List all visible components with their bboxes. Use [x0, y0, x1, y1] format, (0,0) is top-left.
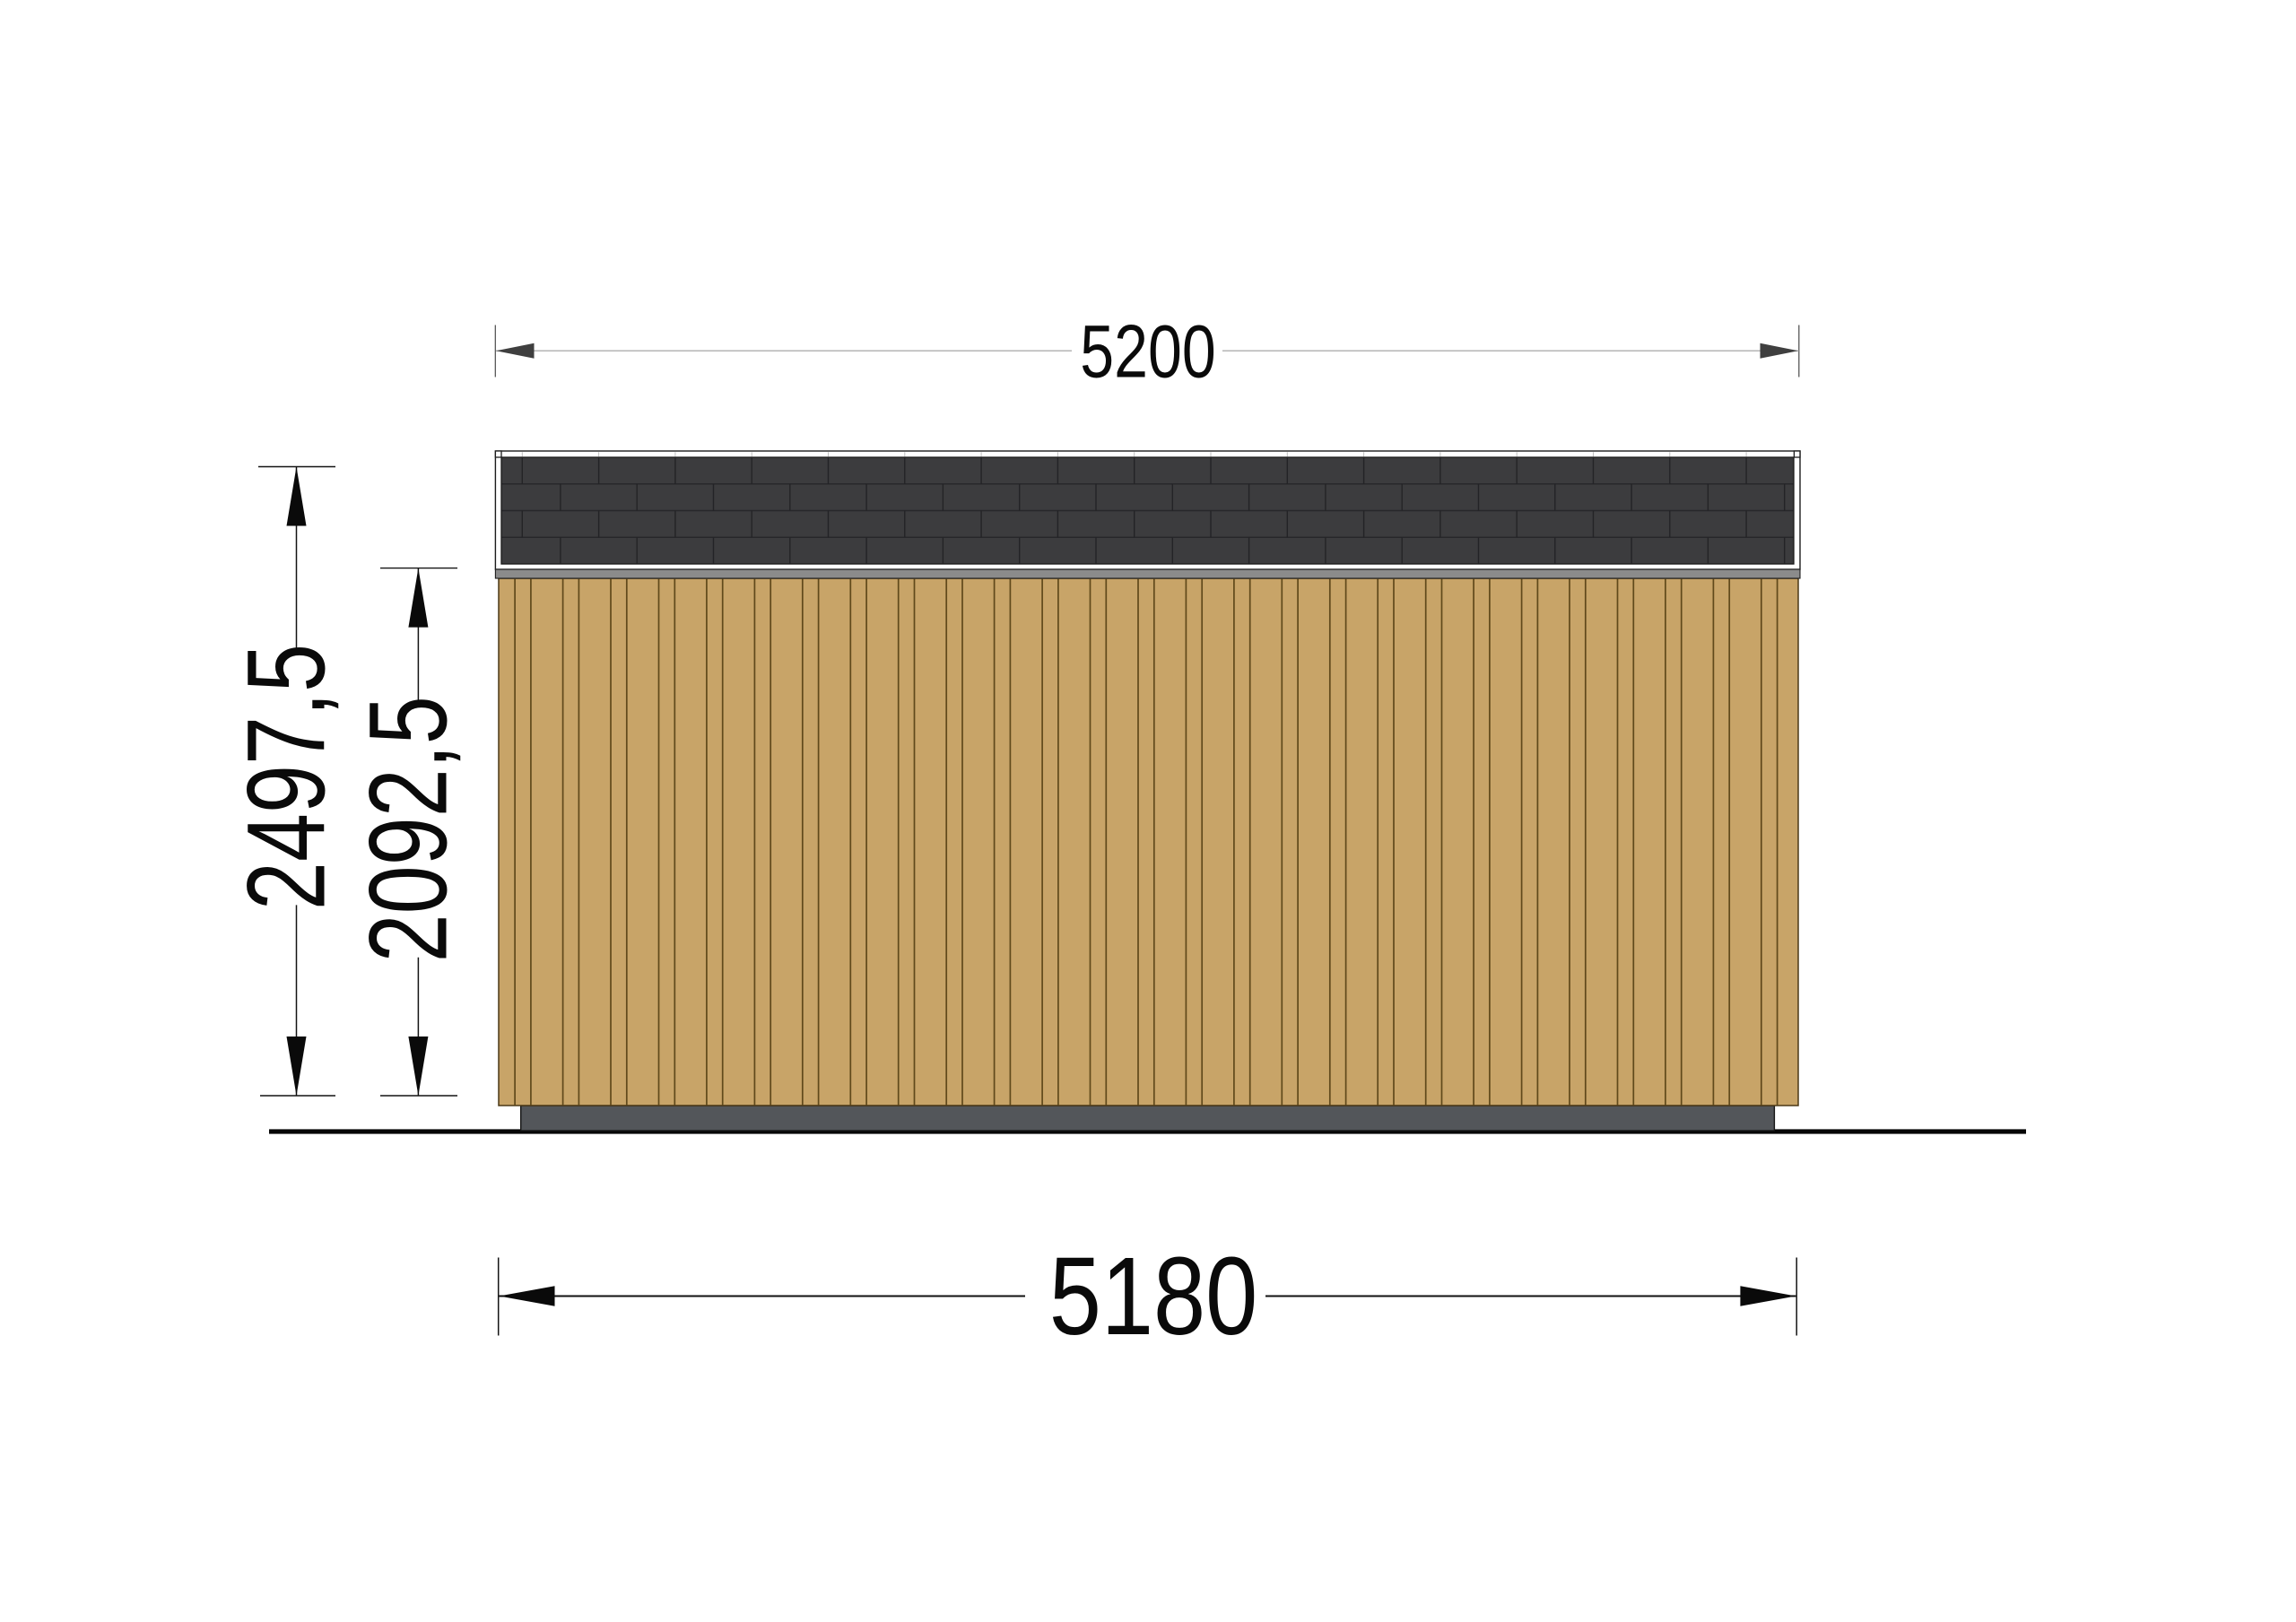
svg-text:2092,5: 2092,5 [348, 696, 470, 962]
svg-text:5200: 5200 [1080, 310, 1215, 394]
svg-text:5180: 5180 [1049, 1236, 1258, 1358]
svg-text:2497,5: 2497,5 [226, 644, 348, 910]
